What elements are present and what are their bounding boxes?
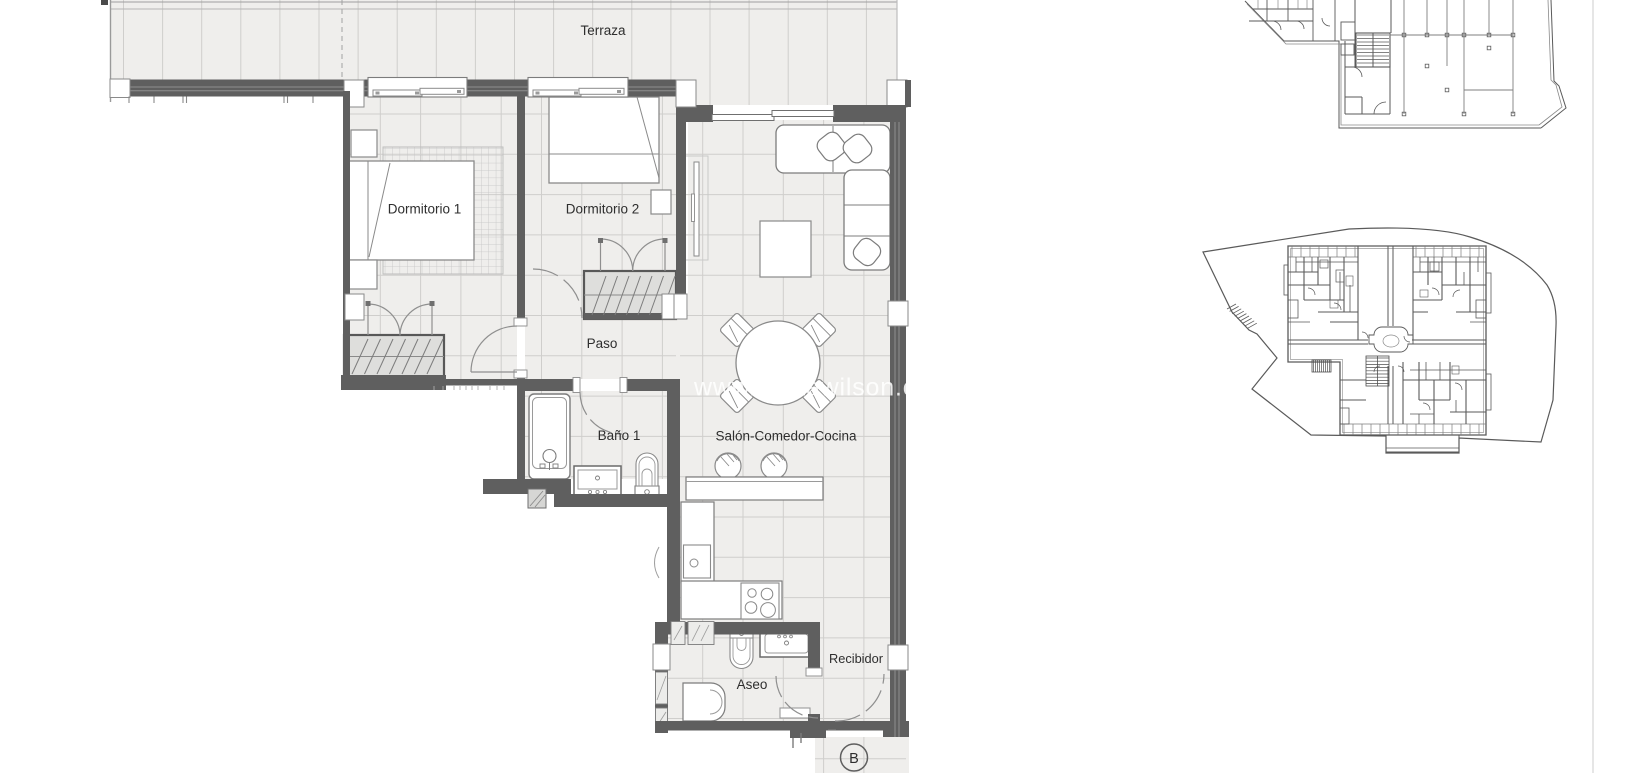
svg-text:Paso: Paso <box>587 336 618 351</box>
svg-text:Aseo: Aseo <box>737 677 768 692</box>
svg-text:Baño 1: Baño 1 <box>598 428 641 443</box>
svg-text:Dormitorio 2: Dormitorio 2 <box>566 202 640 217</box>
svg-text:Terraza: Terraza <box>580 23 626 38</box>
svg-text:Dormitorio 1: Dormitorio 1 <box>388 202 462 217</box>
svg-text:B: B <box>849 751 859 767</box>
svg-text:Recibidor: Recibidor <box>829 651 884 666</box>
svg-text:Salón-Comedor-Cocina: Salón-Comedor-Cocina <box>715 429 857 444</box>
svg-text:www.costawilson.co: www.costawilson.co <box>693 374 931 402</box>
